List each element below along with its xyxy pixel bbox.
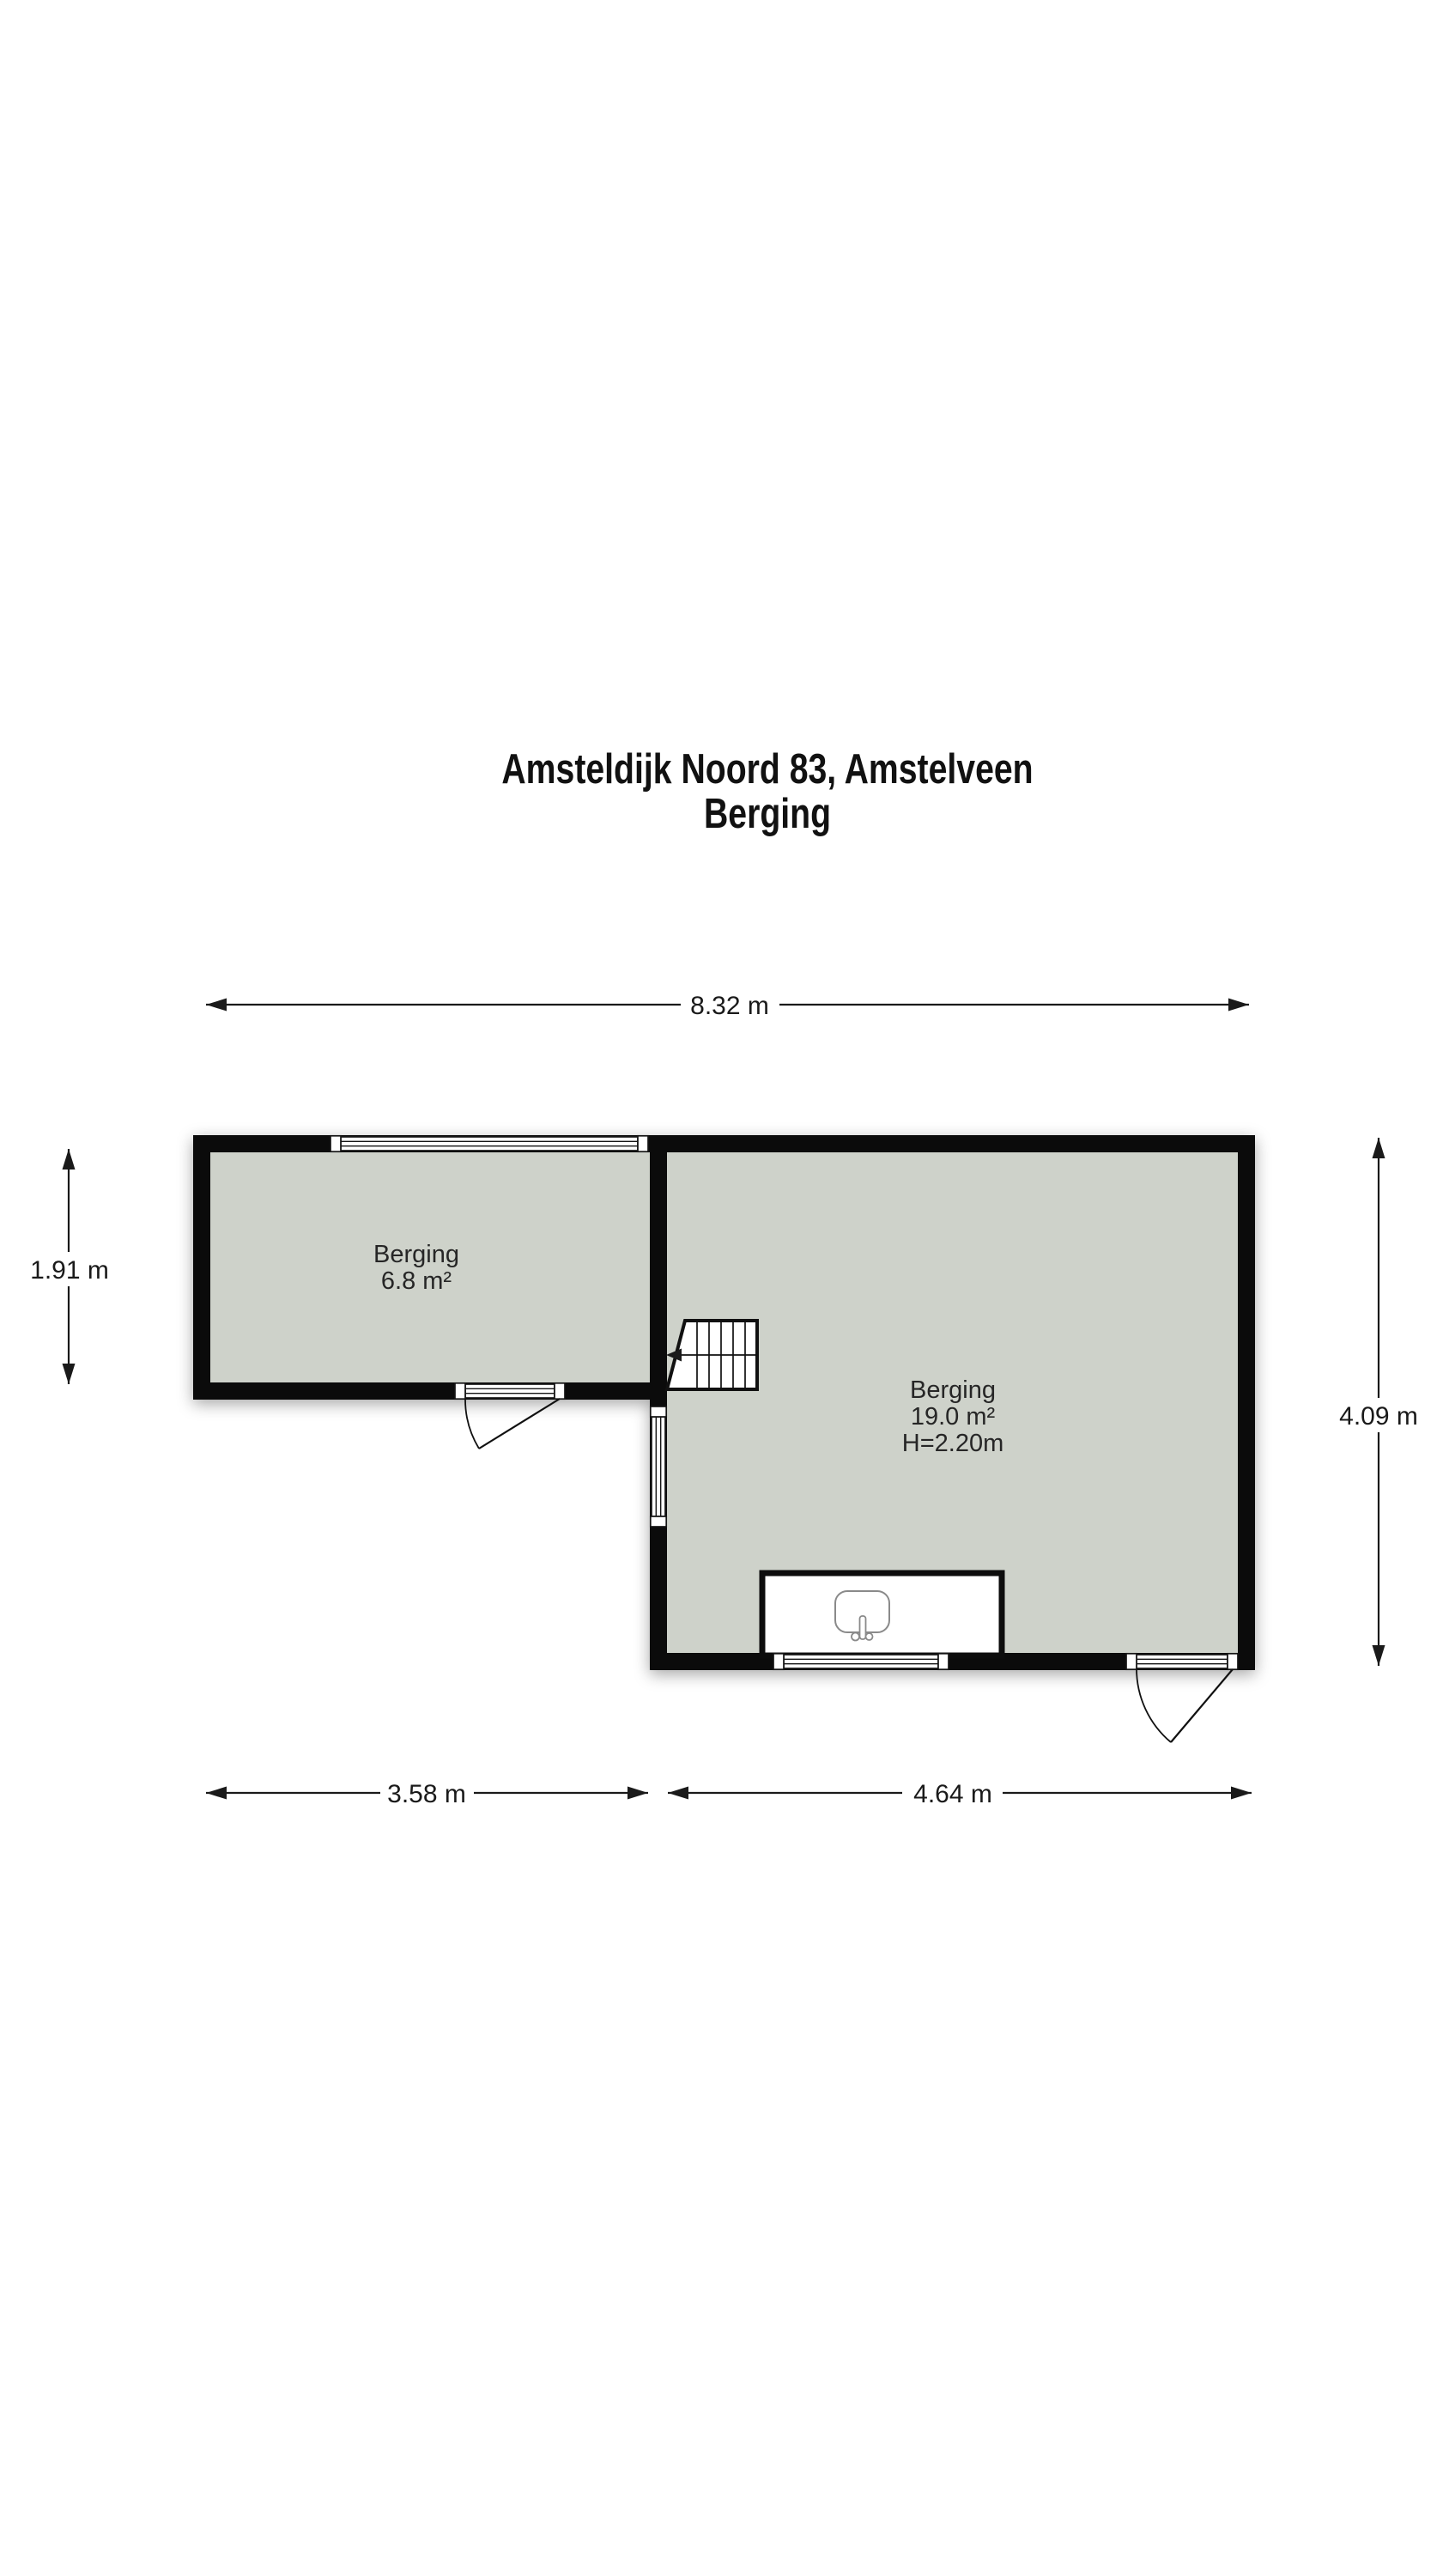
door-glass <box>1137 1655 1228 1668</box>
room-label-left: Berging 6.8 m² <box>373 1241 459 1295</box>
title-block: Amsteldijk Noord 83, Amstelveen Berging <box>501 746 1033 837</box>
dimension-label: 3.58 m <box>387 1780 466 1808</box>
door-glass <box>465 1384 555 1398</box>
sink-knob <box>866 1633 873 1640</box>
room-ceiling-height: H=2.20m <box>902 1430 1003 1457</box>
door-leaf <box>479 1399 560 1449</box>
dimension-label: 8.32 m <box>690 992 769 1020</box>
arrowhead-down-icon <box>63 1364 76 1384</box>
room-name: Berging <box>373 1241 459 1268</box>
arrowhead-down-icon <box>1373 1645 1385 1666</box>
door-left-room <box>455 1383 565 1449</box>
door-swing-arc <box>1137 1668 1171 1742</box>
arrowhead-right-icon <box>627 1787 648 1800</box>
building: Berging 6.8 m² Berging 19.0 m² H=2.20m <box>193 1135 1255 1742</box>
window-left-wall <box>651 1406 666 1527</box>
counter <box>762 1573 1002 1656</box>
door-jamb <box>555 1383 565 1399</box>
page-title: Amsteldijk Noord 83, Amstelveen <box>501 746 1033 793</box>
window-jamb <box>938 1654 949 1669</box>
dimension-right-height: 4.09 m <box>1330 1138 1428 1666</box>
window-jamb <box>651 1406 666 1417</box>
sink-tap <box>860 1616 866 1639</box>
arrowhead-up-icon <box>63 1149 76 1170</box>
door-jamb <box>1126 1654 1137 1669</box>
floorplan-page: Amsteldijk Noord 83, Amstelveen Berging … <box>0 0 1449 2576</box>
arrowhead-up-icon <box>1373 1138 1385 1158</box>
window-jamb <box>638 1136 648 1151</box>
window-jamb <box>651 1516 666 1527</box>
room-label-right: Berging 19.0 m² H=2.20m <box>902 1376 1003 1457</box>
door-jamb <box>455 1383 465 1399</box>
dimension-bottom-left-width: 3.58 m <box>206 1780 648 1808</box>
arrowhead-left-icon <box>206 1787 227 1800</box>
sink-knob <box>852 1633 859 1641</box>
door-jamb <box>1228 1654 1238 1669</box>
dimension-left-height: 1.91 m <box>29 1149 110 1384</box>
page-subtitle: Berging <box>704 791 831 837</box>
room-area: 19.0 m² <box>911 1403 996 1431</box>
window-jamb <box>773 1654 784 1669</box>
window-top <box>330 1136 648 1151</box>
dimension-label: 4.64 m <box>913 1780 992 1808</box>
window-glass <box>784 1655 938 1668</box>
dimension-top-width: 8.32 m <box>206 992 1249 1020</box>
window-bottom <box>773 1654 949 1669</box>
arrowhead-right-icon <box>1231 1787 1252 1800</box>
door-exit <box>1126 1654 1238 1742</box>
dimension-label: 1.91 m <box>30 1256 109 1285</box>
arrowhead-right-icon <box>1228 999 1249 1012</box>
arrowhead-left-icon <box>206 999 227 1012</box>
window-jamb <box>330 1136 341 1151</box>
dimension-label: 4.09 m <box>1339 1402 1418 1431</box>
window-glass <box>341 1137 638 1151</box>
room-name: Berging <box>910 1376 996 1404</box>
door-swing-arc <box>465 1400 479 1449</box>
door-leaf <box>1171 1669 1233 1742</box>
window-glass <box>652 1417 665 1516</box>
dimension-bottom-right-width: 4.64 m <box>668 1780 1252 1808</box>
arrowhead-left-icon <box>668 1787 688 1800</box>
room-area: 6.8 m² <box>381 1267 452 1295</box>
